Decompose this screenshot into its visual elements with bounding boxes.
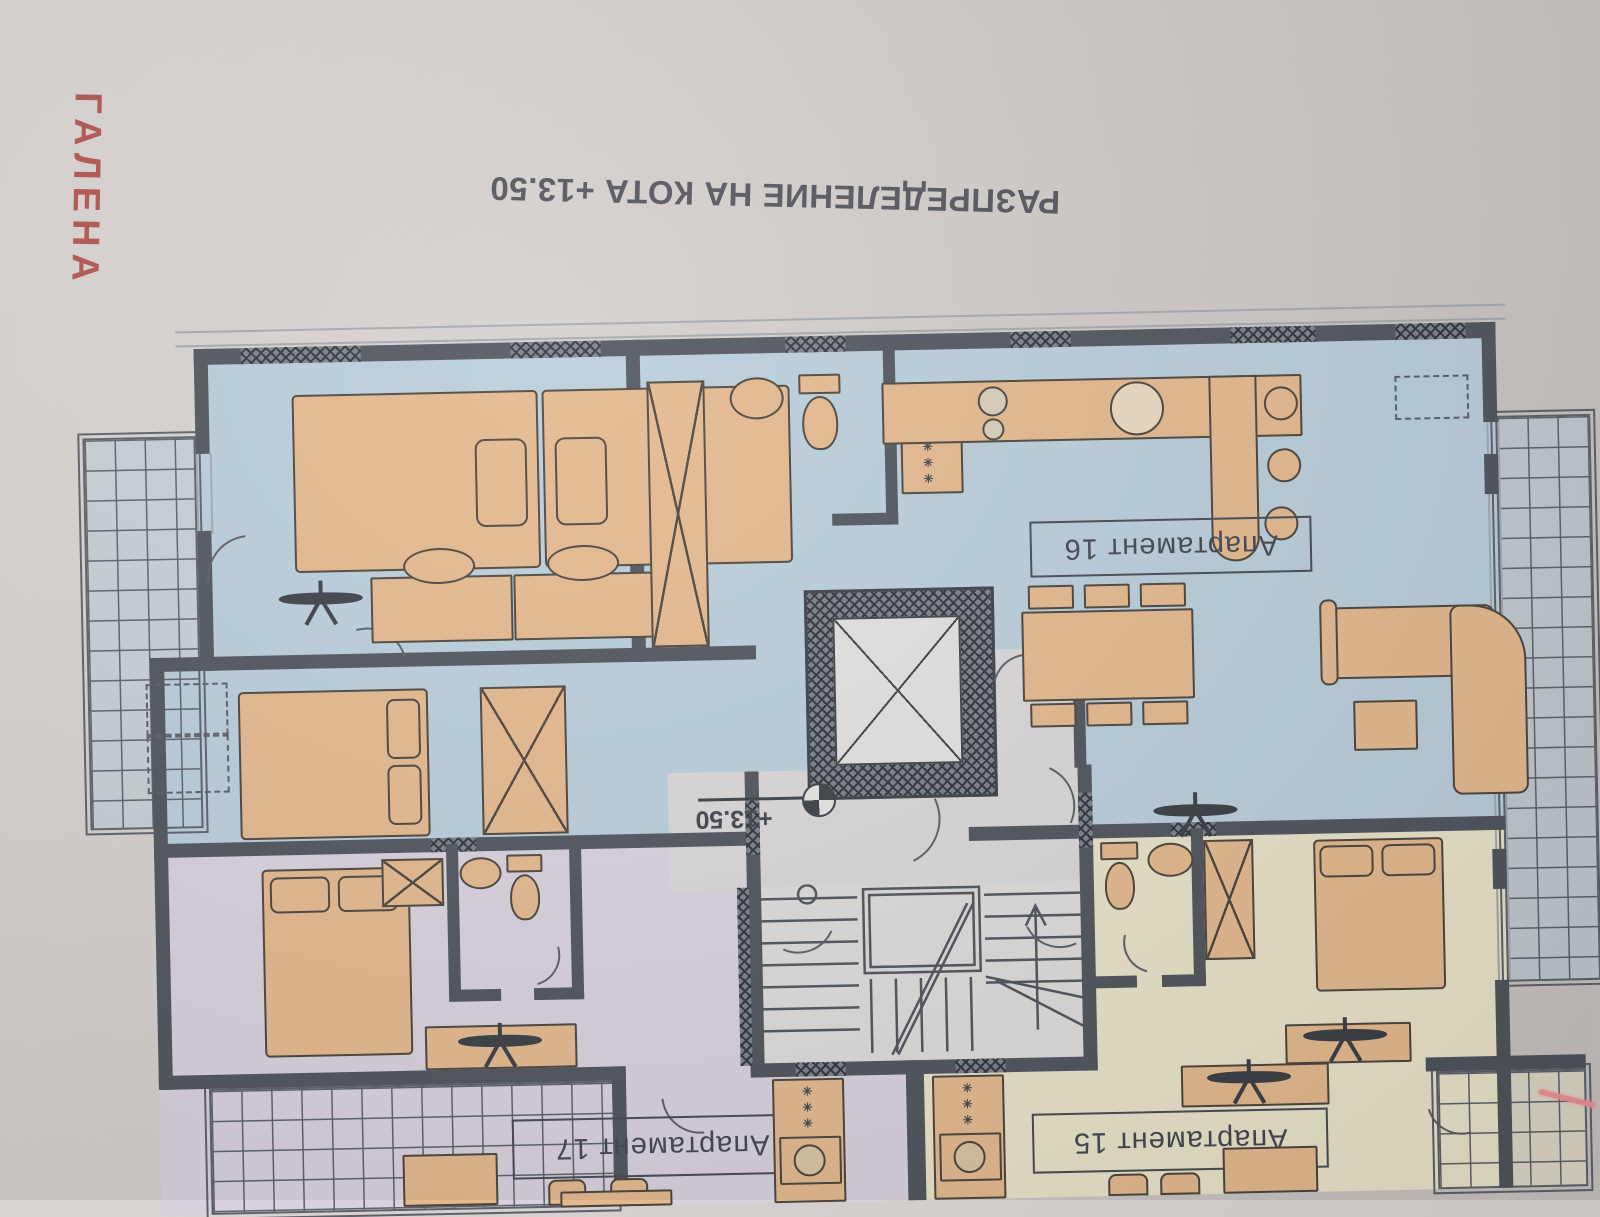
coffee-table — [1353, 700, 1418, 751]
dining-chair — [1084, 584, 1130, 609]
wardrobe — [381, 858, 444, 907]
wall-hatch — [956, 1058, 1006, 1073]
dining-chair — [1086, 702, 1132, 727]
ceiling-fan-icon — [1300, 1012, 1391, 1066]
furniture-outline-dashed — [146, 682, 229, 736]
furniture-outline-dashed — [147, 734, 230, 794]
coffee-table — [1222, 1146, 1318, 1194]
apartment-17-label: Апартамент 17 — [512, 1113, 813, 1179]
coffee-table — [402, 1153, 498, 1207]
window-hatch — [1395, 322, 1465, 339]
wall-bath17-bottom — [449, 989, 501, 1002]
plan-title: РАЗПРЕДЕЛЕНИЕ НА КОТА +13.50 — [420, 167, 1131, 222]
wardrobe — [480, 685, 569, 835]
pillow — [387, 764, 422, 825]
floor-plan: +13.50 ✳✳✳ Апартамент 16 — [80, 303, 1578, 1217]
galena-watermark: ГАЛЕНА — [62, 92, 108, 289]
washer-marks: ✳✳✳ — [921, 440, 936, 488]
sofa-armrest — [1319, 599, 1339, 685]
pillow — [1381, 843, 1436, 876]
wall-left-mid — [197, 531, 214, 671]
pillow — [554, 436, 608, 525]
wall-bath17-bottom — [534, 987, 584, 1000]
wall-right-upper — [1481, 322, 1497, 422]
apartment-16-label: Апартамент 16 — [1029, 516, 1312, 578]
pillow — [474, 438, 528, 527]
dining-chair — [1030, 703, 1076, 728]
sofa-section — [1449, 603, 1529, 795]
dining-chair — [1140, 582, 1186, 607]
tall-wardrobe — [646, 380, 710, 647]
kitchen-sink-basin — [939, 1132, 1002, 1181]
ceiling-fan-icon — [1204, 1054, 1295, 1108]
desk — [513, 572, 656, 641]
desk — [370, 575, 513, 644]
wall-left-upper — [194, 349, 210, 454]
ceiling-fan-icon — [455, 1018, 546, 1072]
ceiling-fan-icon — [275, 576, 366, 630]
furniture-outline-dashed — [1394, 374, 1469, 420]
wardrobe — [1203, 839, 1256, 960]
wall-right-post — [1492, 849, 1507, 889]
wall-bath15-bottom — [1162, 974, 1206, 987]
window-hatch — [510, 341, 600, 359]
dining-chair — [1028, 585, 1074, 610]
ceiling-fan-icon — [1150, 787, 1241, 841]
dining-table — [1021, 608, 1195, 702]
washer-marks: ✳✳✳ — [960, 1081, 975, 1129]
dining-table — [560, 1189, 672, 1207]
window-hatch — [241, 346, 361, 365]
window-hatch — [1010, 331, 1070, 348]
toilet — [1099, 841, 1140, 914]
window-hatch — [785, 335, 845, 352]
pillow — [386, 698, 421, 759]
dining-chair — [1142, 700, 1188, 725]
dining-chair — [1160, 1172, 1200, 1195]
wall-hatch — [1078, 792, 1093, 847]
elevator-cab — [832, 615, 963, 766]
wall-right-post — [1484, 454, 1499, 494]
level-marker-value: +13.50 — [695, 803, 773, 834]
wall-right-lower — [1495, 980, 1513, 1188]
washer-marks: ✳✳✳ — [800, 1084, 815, 1132]
pillow — [1319, 845, 1374, 878]
dining-chair — [1108, 1173, 1148, 1196]
window-hatch — [1230, 326, 1315, 344]
toilet — [505, 854, 544, 925]
wall-kitchen-divider — [906, 1060, 927, 1200]
wall-hatch — [796, 1062, 846, 1077]
balcony-door-left — [196, 454, 214, 534]
kitchen-sink-basin — [779, 1136, 842, 1185]
photo-of-floor-plan: { "watermark": { "text": "ГАЛЕНА", "colo… — [0, 0, 1600, 1200]
toilet — [796, 374, 844, 453]
pillow — [270, 876, 331, 913]
